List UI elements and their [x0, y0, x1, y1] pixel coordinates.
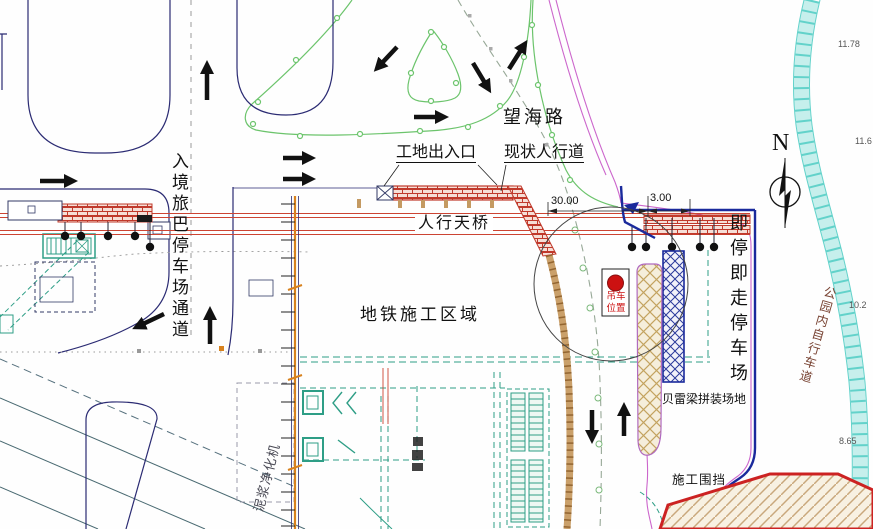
diagonal-roads — [0, 359, 305, 529]
fenced-yard-polygon — [660, 474, 873, 529]
u-road-2 — [237, 0, 333, 115]
plan-graphics — [0, 0, 873, 529]
arrow-upright-island — [509, 50, 521, 69]
north-compass — [770, 158, 800, 228]
small-plan-boxes — [35, 222, 294, 502]
escalator-strips — [511, 393, 543, 522]
arrow-downleft-south — [143, 314, 164, 324]
arrow-downleft-island — [382, 47, 397, 63]
island-outline — [86, 402, 157, 529]
u-road-1 — [28, 0, 170, 153]
green-road-curves — [245, 0, 618, 207]
footbridge-deck-left — [8, 201, 154, 251]
park-bike-lane-band — [793, 0, 868, 529]
traffic-island-triangle — [408, 31, 461, 102]
small-illegible-label-marks — [412, 437, 423, 471]
escalator-diagonal — [0, 241, 89, 333]
tan-hatch-strip — [637, 264, 662, 455]
crane-position-box — [602, 269, 629, 316]
site-plan-drawing: 望海路 工地出入口 现状人行道 人行天桥 地铁施工区域 入境旅巴停车场通道 即停… — [0, 0, 873, 529]
site-gate-structure — [357, 186, 513, 208]
construction-fence-line — [281, 196, 302, 529]
arrow-downright-island — [473, 63, 485, 83]
